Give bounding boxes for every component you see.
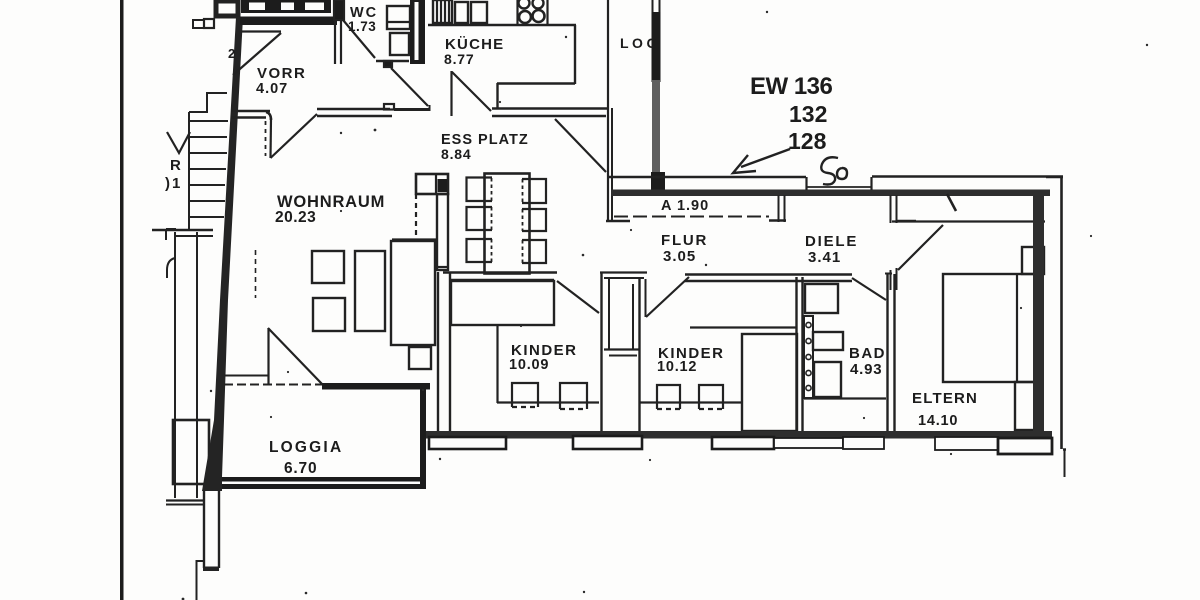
svg-text:132: 132 bbox=[789, 101, 827, 127]
svg-text:4.07: 4.07 bbox=[256, 81, 288, 97]
svg-text:FLUR: FLUR bbox=[661, 232, 708, 249]
svg-text:8.84: 8.84 bbox=[441, 146, 471, 162]
svg-text:128: 128 bbox=[788, 128, 827, 154]
svg-text:LOG: LOG bbox=[620, 35, 661, 51]
svg-text:4.93: 4.93 bbox=[850, 361, 882, 378]
svg-text:A 1.90: A 1.90 bbox=[661, 198, 709, 214]
svg-text:3.41: 3.41 bbox=[808, 249, 841, 266]
svg-text:20.23: 20.23 bbox=[275, 209, 316, 226]
svg-text:1.73: 1.73 bbox=[348, 19, 376, 34]
svg-text:)1: )1 bbox=[165, 175, 182, 192]
svg-text:2: 2 bbox=[228, 46, 235, 61]
svg-text:BAD: BAD bbox=[849, 345, 886, 362]
svg-text:10.09: 10.09 bbox=[509, 357, 549, 373]
svg-text:6.70: 6.70 bbox=[284, 460, 317, 477]
svg-text:10.12: 10.12 bbox=[657, 359, 697, 375]
svg-text:VORR: VORR bbox=[257, 65, 306, 82]
svg-text:ELTERN: ELTERN bbox=[912, 390, 978, 407]
svg-text:LOGGIA: LOGGIA bbox=[269, 439, 343, 456]
svg-text:8.77: 8.77 bbox=[444, 51, 474, 67]
svg-text:14.10: 14.10 bbox=[918, 413, 958, 429]
svg-text:DIELE: DIELE bbox=[805, 233, 858, 250]
svg-text:3.05: 3.05 bbox=[663, 248, 696, 265]
svg-text:EW 136: EW 136 bbox=[750, 73, 833, 100]
svg-text:R: R bbox=[170, 157, 183, 174]
